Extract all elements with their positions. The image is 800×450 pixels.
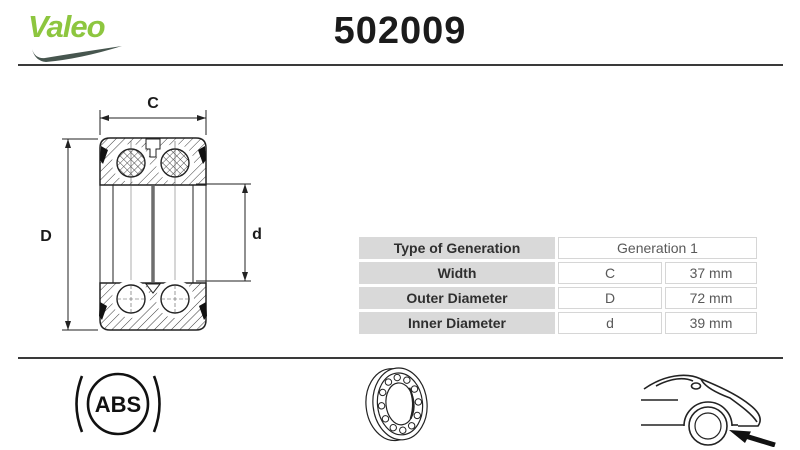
abs-icon: ABS: [60, 362, 180, 447]
spec-row-label: Type of Generation: [359, 237, 555, 259]
spec-row-value: 72 mm: [665, 287, 757, 309]
spec-row-label: Outer Diameter: [359, 287, 555, 309]
bearing-cross-section-drawing: C D d: [30, 85, 280, 350]
spec-row-value: 37 mm: [665, 262, 757, 284]
header-divider: [18, 64, 783, 66]
spec-row-value: Generation 1: [558, 237, 757, 259]
bearing-photo-icon: [353, 362, 445, 447]
spec-table: Type of Generation Generation 1 Width C …: [359, 237, 757, 334]
spec-row-symbol: D: [558, 287, 662, 309]
wheel-pointer-arrow: [729, 430, 775, 445]
spec-row-label: Width: [359, 262, 555, 284]
part-number: 502009: [0, 10, 800, 53]
spec-row-symbol: d: [558, 312, 662, 334]
inner-diameter-label: d: [252, 226, 262, 243]
spec-row-label: Inner Diameter: [359, 312, 555, 334]
dimension-outer-diameter-D: D: [40, 139, 98, 330]
car-front-wheel-icon: [626, 362, 791, 447]
bearing-middle-section: [100, 185, 206, 283]
outer-diameter-label: D: [40, 228, 52, 245]
footer-divider: [18, 357, 783, 359]
bearing-bottom-section: [99, 280, 207, 330]
width-label: C: [147, 95, 159, 112]
bearing-top-section: [100, 138, 206, 186]
abs-icon-label: ABS: [95, 392, 141, 417]
spec-row-symbol: C: [558, 262, 662, 284]
dimension-width-C: C: [100, 95, 206, 135]
spec-row-value: 39 mm: [665, 312, 757, 334]
